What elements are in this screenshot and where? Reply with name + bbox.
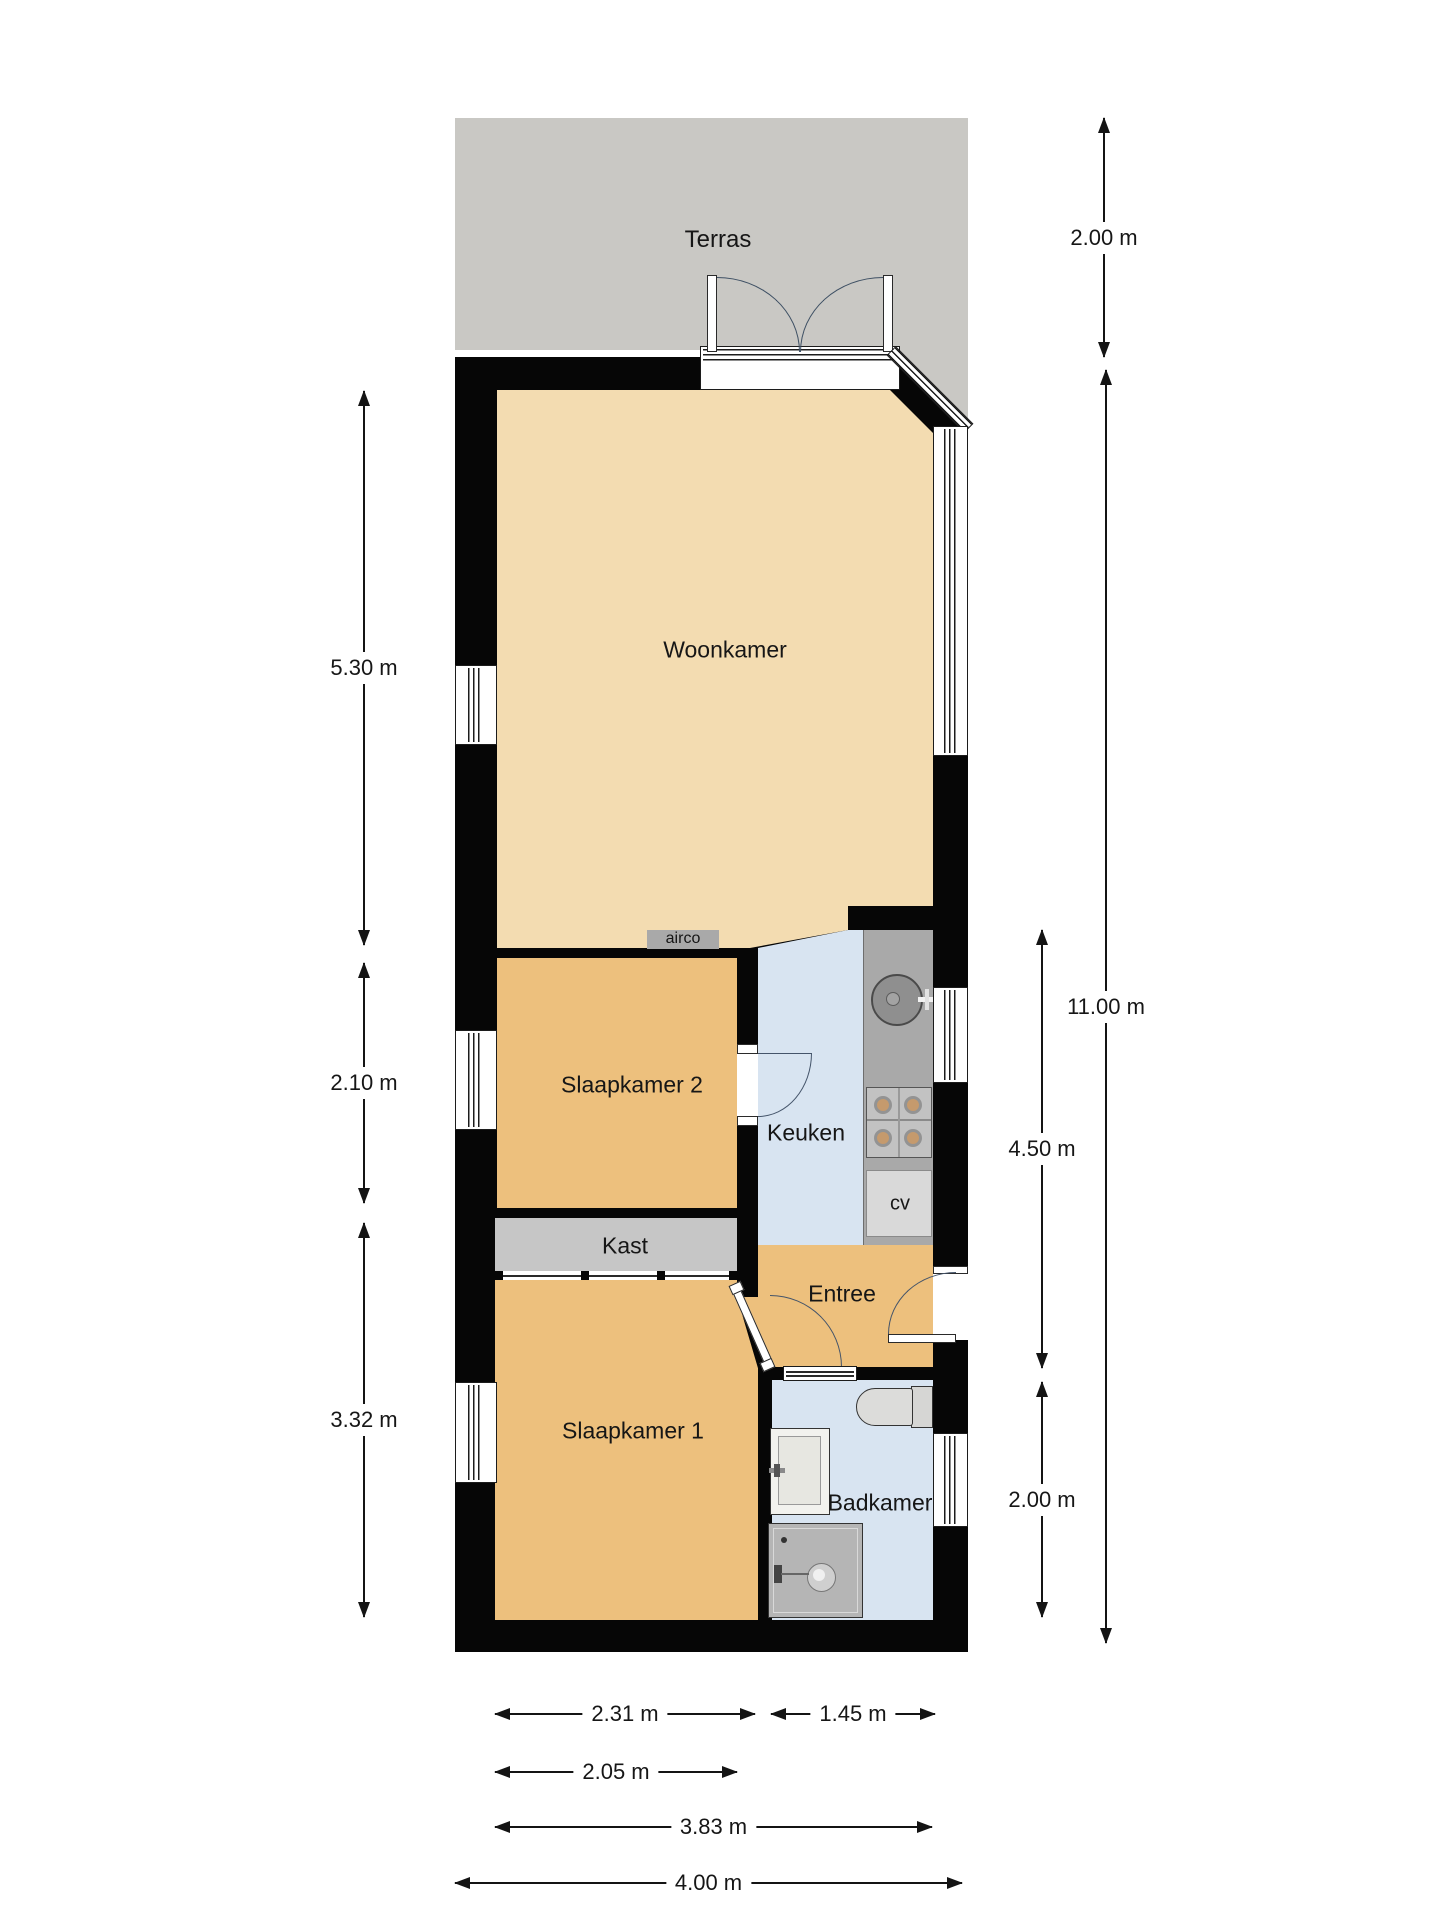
dimension-label: 2.31 m xyxy=(582,1698,667,1730)
burner-icon xyxy=(904,1096,922,1114)
label-slaapkamer1: Slaapkamer 1 xyxy=(562,1418,704,1445)
kast-door-stop xyxy=(581,1271,589,1280)
window-slaapkamer2-left xyxy=(455,1030,497,1130)
label-entree: Entree xyxy=(808,1281,876,1308)
dimension-label: 2.00 m xyxy=(1061,222,1146,254)
dimension-label: 4.50 m xyxy=(999,1133,1084,1165)
stove-icon xyxy=(866,1087,932,1158)
label-kast: Kast xyxy=(602,1233,648,1260)
burner-icon xyxy=(904,1129,922,1147)
window-badkamer-right xyxy=(933,1433,968,1527)
label-badkamer: Badkamer xyxy=(828,1490,933,1517)
window-glass xyxy=(944,1436,957,1524)
label-cv: cv xyxy=(890,1193,910,1216)
floorplan-page: Terras Woonkamer airco Slaapkamer 2 Keuk… xyxy=(0,0,1440,1920)
room-woonkamer xyxy=(497,390,933,948)
dimension-label: 3.32 m xyxy=(321,1404,406,1436)
window-glass xyxy=(944,990,957,1080)
terrace-door-left-leaf xyxy=(707,275,717,352)
label-woonkamer: Woonkamer xyxy=(663,637,787,664)
dimension-label: 5.30 m xyxy=(321,652,406,684)
kast-door-track xyxy=(495,1275,737,1277)
basin-highlight xyxy=(813,1569,825,1581)
window-slaapkamer1-left xyxy=(455,1382,497,1483)
window-glass xyxy=(468,668,481,742)
window-woonkamer-right xyxy=(933,426,968,756)
wall-slaapkamer2-kast xyxy=(497,1208,737,1218)
burner-icon xyxy=(874,1129,892,1147)
basin-faucet-icon xyxy=(781,1573,809,1575)
kast-sliding-doors xyxy=(495,1271,737,1280)
label-keuken: Keuken xyxy=(767,1120,845,1147)
shower-tray-icon xyxy=(770,1428,830,1515)
dimension-label: 11.00 m xyxy=(1058,991,1154,1023)
burner-icon xyxy=(874,1096,892,1114)
dimension-label: 4.00 m xyxy=(666,1867,751,1899)
wall-slaapkamer2-keuken xyxy=(737,958,758,1297)
label-terras: Terras xyxy=(685,226,752,254)
kast-door-stop xyxy=(729,1271,737,1280)
window-glass xyxy=(944,429,957,753)
badkamer-door-track xyxy=(786,1375,854,1377)
keuken-door-opening xyxy=(737,1053,758,1117)
keuken-door-frame-top xyxy=(737,1044,758,1054)
washbasin-unit-icon xyxy=(768,1523,863,1618)
front-door-leaf xyxy=(888,1334,956,1343)
shower-valve-icon xyxy=(774,1464,780,1477)
kitchen-sink-drain-icon xyxy=(886,992,900,1006)
toilet-tank-icon xyxy=(911,1386,933,1428)
keuken-door-frame-bottom xyxy=(737,1116,758,1126)
terrace-door-right-leaf xyxy=(883,275,893,352)
badkamer-door-track xyxy=(786,1371,854,1373)
room-slaapkamer1 xyxy=(495,1280,760,1620)
label-airco: airco xyxy=(666,930,701,948)
basin-drain-dot xyxy=(781,1537,787,1543)
window-woonkamer-left xyxy=(455,665,497,745)
dimension-label: 2.10 m xyxy=(321,1067,406,1099)
wall-keuken-top xyxy=(848,906,933,930)
dimension-label: 2.05 m xyxy=(573,1756,658,1788)
label-slaapkamer2: Slaapkamer 2 xyxy=(561,1072,703,1099)
dimension-label: 3.83 m xyxy=(671,1811,756,1843)
window-glass xyxy=(468,1385,481,1480)
wall-woonkamer-slaapkamer2 xyxy=(497,948,750,958)
badkamer-sliding-door xyxy=(783,1366,857,1381)
kast-door-stop xyxy=(495,1271,503,1280)
dimension-label: 1.45 m xyxy=(810,1698,895,1730)
window-keuken-right xyxy=(933,987,968,1083)
terrace-door-opening xyxy=(700,346,900,390)
toilet-bowl-icon xyxy=(856,1388,913,1426)
kitchen-faucet-icon xyxy=(925,989,929,1010)
kast-door-stop xyxy=(657,1271,665,1280)
dimension-label: 2.00 m xyxy=(999,1484,1084,1516)
window-glass xyxy=(468,1033,481,1127)
